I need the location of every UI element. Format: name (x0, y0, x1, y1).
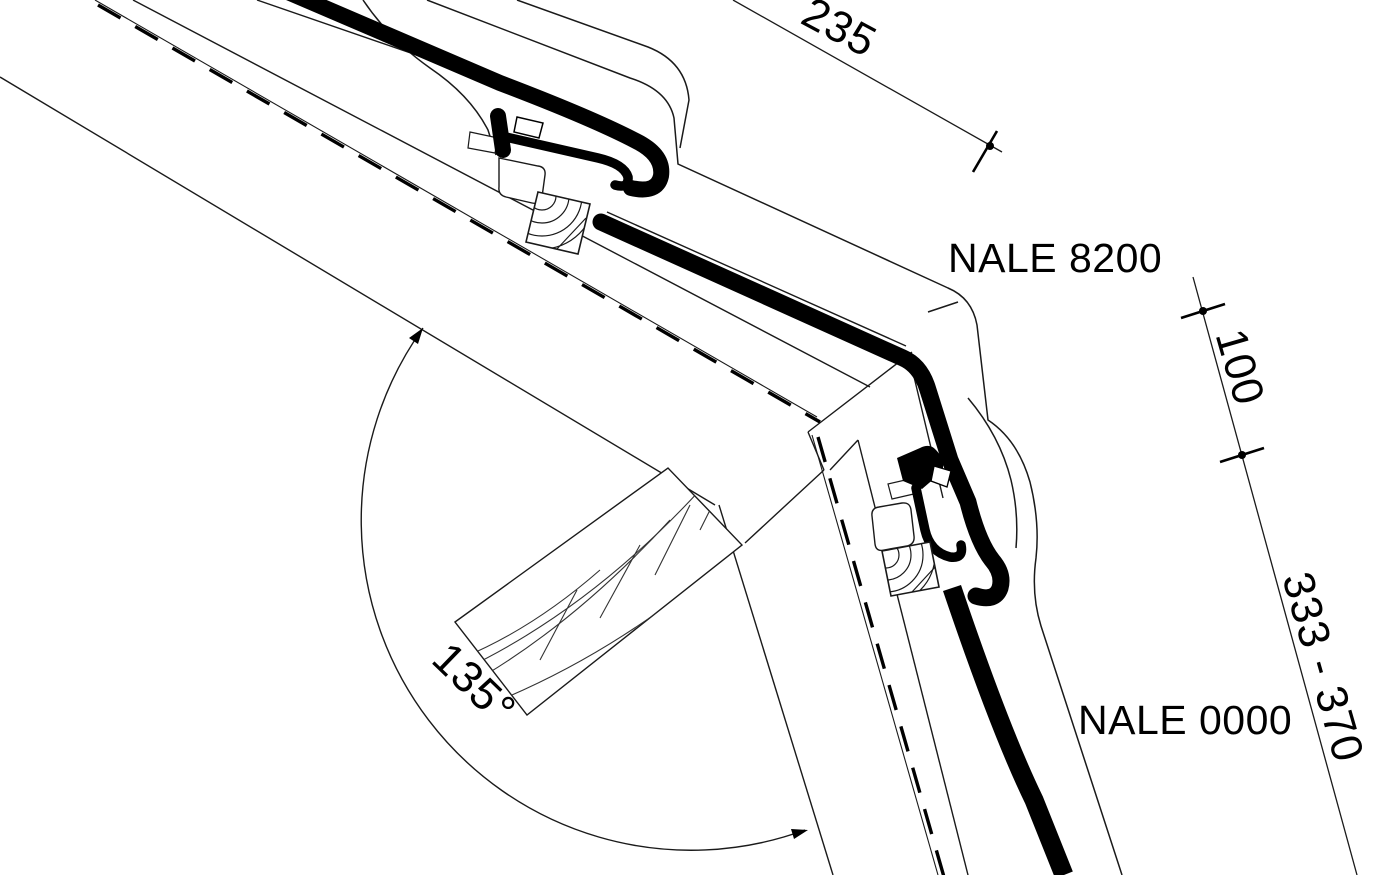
construction-lines (0, 0, 968, 875)
technical-drawing-canvas: 135° 235 100 333 - 370 NALE 8200 NALE 00… (0, 0, 1400, 875)
clamp1-head (498, 116, 503, 150)
angle-arrow-upper (409, 328, 423, 344)
band-companion-lines (257, 0, 943, 498)
clamp1-head-notch (514, 117, 543, 138)
label-nale-8200: NALE 8200 (948, 235, 1162, 281)
dim100-value: 100 (1206, 324, 1274, 411)
dashed-seam-right (818, 437, 944, 875)
clamp2-base-bracket (872, 503, 914, 551)
dim235-dot (986, 142, 994, 150)
screw1-outline (526, 192, 590, 254)
sheathing-right-line (858, 440, 968, 875)
dimension-235: 235 (733, 0, 1002, 172)
inner-face-right-line (719, 505, 833, 875)
dim235-value: 235 (794, 0, 884, 67)
label-nale-0000: NALE 0000 (1078, 697, 1292, 743)
angle-arrow-lower (791, 829, 808, 839)
dim100-dot-lower (1238, 451, 1246, 459)
seam-clamp-2 (837, 446, 962, 604)
inner-face-left-line (0, 77, 715, 505)
corner-detail-drawing: 135° 235 100 333 - 370 NALE 8200 NALE 00… (0, 0, 1400, 875)
corner-chamfer-line (928, 302, 958, 312)
panel-band-nale-0000 (952, 588, 1064, 875)
dimension-right-side: 100 333 - 370 (1181, 277, 1373, 875)
dim100-dot-upper (1199, 307, 1207, 315)
